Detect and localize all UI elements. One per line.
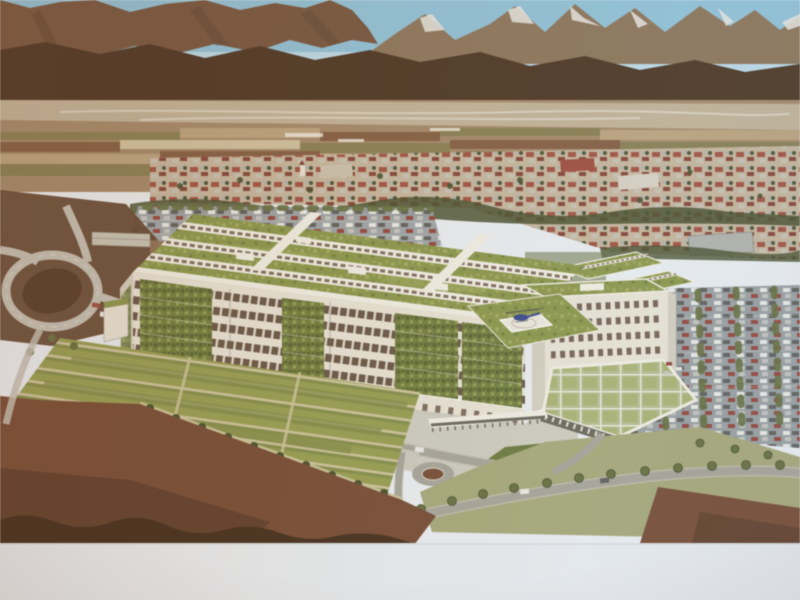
town-building — [320, 164, 353, 178]
tree-row — [145, 207, 432, 209]
photo-of-projected-slide — [0, 0, 800, 600]
town-building — [618, 173, 659, 190]
service-sheds — [92, 232, 150, 247]
west-entry-block — [104, 298, 128, 342]
car — [520, 488, 529, 494]
aerial-rendering — [0, 0, 800, 600]
red-roof-building — [560, 158, 595, 172]
slide-white-border — [0, 543, 800, 600]
car — [600, 477, 609, 483]
